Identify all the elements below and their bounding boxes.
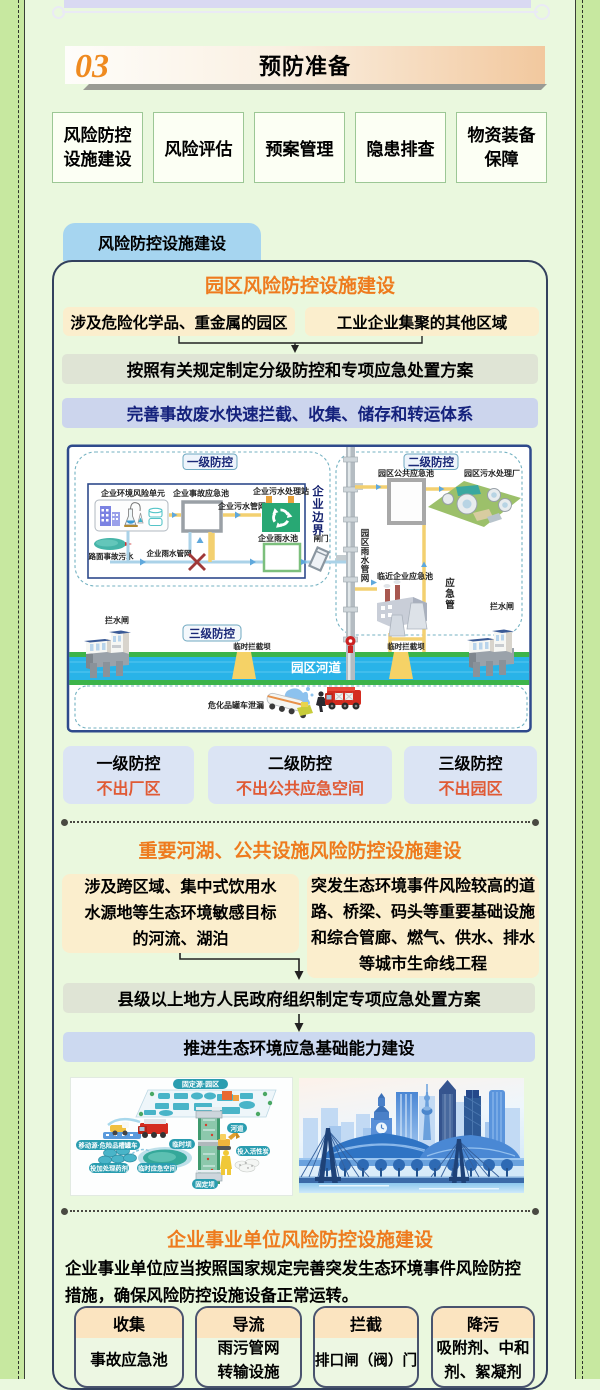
svg-text:企业污水管网: 企业污水管网 xyxy=(217,501,266,511)
svg-text:急: 急 xyxy=(445,588,455,600)
svg-text:边: 边 xyxy=(311,510,324,524)
svg-text:闸门: 闸门 xyxy=(314,533,329,543)
svg-text:固定坝: 固定坝 xyxy=(195,1180,215,1189)
svg-text:企业雨水管网: 企业雨水管网 xyxy=(146,548,192,558)
svg-text:企业污水处理站: 企业污水处理站 xyxy=(252,486,309,496)
svg-text:园区污水处理厂: 园区污水处理厂 xyxy=(464,468,520,478)
svg-text:危化品罐车泄漏: 危化品罐车泄漏 xyxy=(207,700,264,710)
svg-text:临近企业应急池: 临近企业应急池 xyxy=(377,571,433,581)
svg-text:企业雨水池: 企业雨水池 xyxy=(257,533,298,543)
svg-text:应: 应 xyxy=(445,577,455,589)
svg-text:三级防控: 三级防控 xyxy=(189,627,235,641)
svg-text:拦水闸: 拦水闸 xyxy=(490,601,514,611)
svg-text:河道: 河道 xyxy=(231,1124,245,1133)
svg-text:固定源·园区: 固定源·园区 xyxy=(182,1080,219,1089)
svg-text:临时坝: 临时坝 xyxy=(172,1140,192,1149)
svg-text:拦水闸: 拦水闸 xyxy=(105,615,129,625)
svg-text:企业环境风险单元: 企业环境风险单元 xyxy=(100,488,165,498)
svg-text:投入活性炭: 投入活性炭 xyxy=(237,1147,269,1156)
svg-text:企: 企 xyxy=(311,484,324,498)
svg-text:二级防控: 二级防控 xyxy=(408,455,454,469)
svg-text:业: 业 xyxy=(312,497,324,511)
svg-text:临时应急空间: 临时应急空间 xyxy=(138,1164,176,1173)
svg-text:管: 管 xyxy=(445,599,455,611)
svg-text:临时拦截坝: 临时拦截坝 xyxy=(233,641,271,651)
svg-text:园区公共应急池: 园区公共应急池 xyxy=(378,468,434,478)
svg-text:园区河道: 园区河道 xyxy=(291,660,342,675)
svg-text:网: 网 xyxy=(361,573,370,583)
svg-text:投加处理药剂: 投加处理药剂 xyxy=(90,1164,128,1173)
svg-text:临时拦截坝: 临时拦截坝 xyxy=(387,641,425,651)
svg-text:移动源·危险品槽罐车: 移动源·危险品槽罐车 xyxy=(79,1141,138,1150)
svg-text:企业事故应急池: 企业事故应急池 xyxy=(172,488,229,498)
svg-text:一级防控: 一级防控 xyxy=(187,455,233,469)
